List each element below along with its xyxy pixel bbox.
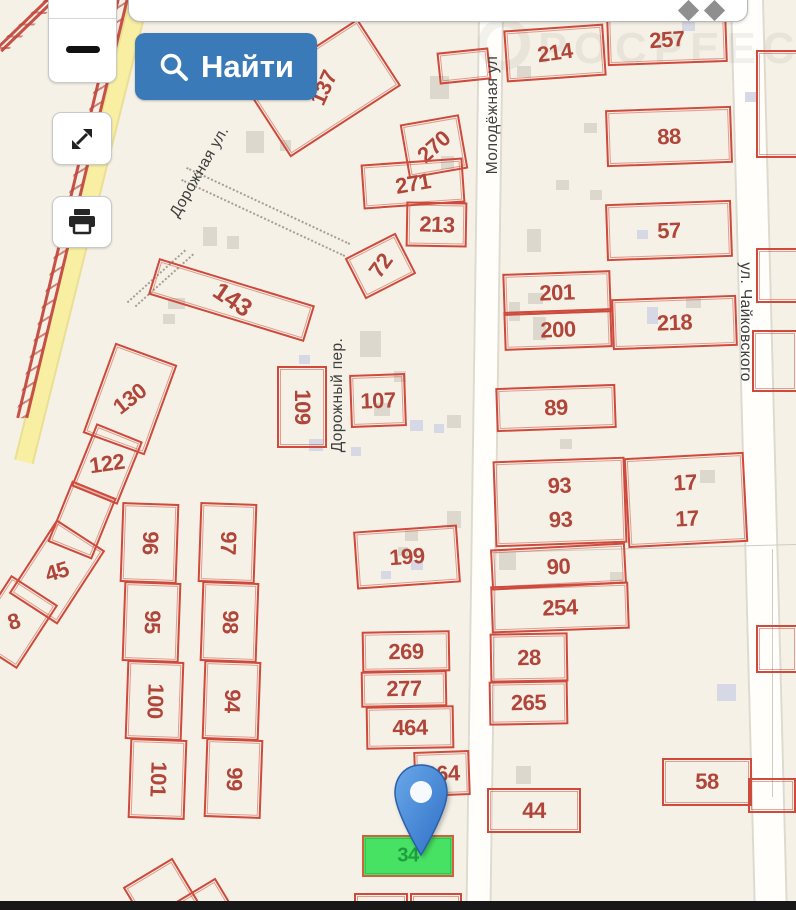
divider (49, 18, 116, 19)
bottom-bar (0, 901, 796, 910)
top-panel (128, 0, 748, 22)
zoom-out-button[interactable] (48, 0, 117, 83)
panel-glyph-icon (704, 0, 725, 21)
street-label: Дорожный пер. (329, 338, 347, 453)
street-label: Молодёжная ул (484, 56, 502, 174)
panel-glyph-icon (678, 0, 699, 21)
street-label: Дорожная ул. (167, 123, 234, 220)
search-icon (158, 51, 190, 83)
fullscreen-button[interactable] (52, 112, 112, 165)
minus-icon (66, 46, 100, 53)
printer-icon (67, 208, 97, 236)
search-button-label: Найти (201, 49, 294, 85)
expand-arrows-icon (68, 125, 96, 153)
street-label: ул. Чайковского (736, 262, 754, 382)
print-button[interactable] (52, 196, 112, 248)
search-button[interactable]: Найти (135, 33, 317, 100)
map-canvas[interactable]: РОСРЕЕСТР 137270271213721431301224589695… (0, 0, 796, 910)
cadastral-map-app: РОСРЕЕСТР 137270271213721431301224589695… (0, 0, 796, 910)
map-pin[interactable] (391, 762, 451, 858)
